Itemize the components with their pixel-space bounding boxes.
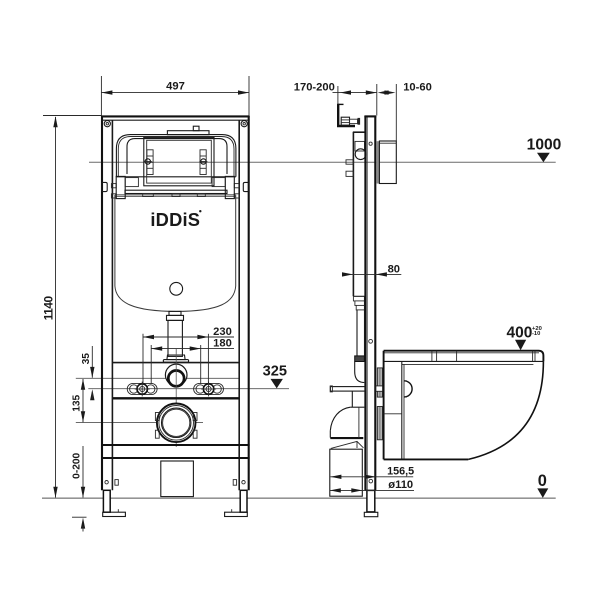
svg-text:180: 180 — [213, 337, 232, 349]
svg-text:ø110: ø110 — [388, 479, 413, 491]
svg-text:135: 135 — [71, 394, 82, 411]
svg-text:325: 325 — [263, 364, 287, 380]
svg-text:1000: 1000 — [527, 136, 562, 153]
svg-text:-10: -10 — [532, 331, 540, 337]
svg-text:230: 230 — [213, 326, 232, 338]
svg-text:0-200: 0-200 — [72, 452, 83, 478]
svg-text:80: 80 — [388, 264, 400, 276]
svg-text:0: 0 — [538, 472, 547, 490]
svg-text:35: 35 — [81, 353, 92, 365]
svg-text:iDDiS: iDDiS — [150, 209, 200, 230]
svg-text:170-200: 170-200 — [294, 81, 335, 93]
svg-text:1140: 1140 — [41, 295, 55, 320]
svg-text:400: 400 — [506, 324, 532, 341]
svg-text:10-60: 10-60 — [403, 81, 432, 93]
svg-text:156,5: 156,5 — [387, 466, 414, 478]
svg-text:497: 497 — [166, 80, 185, 92]
